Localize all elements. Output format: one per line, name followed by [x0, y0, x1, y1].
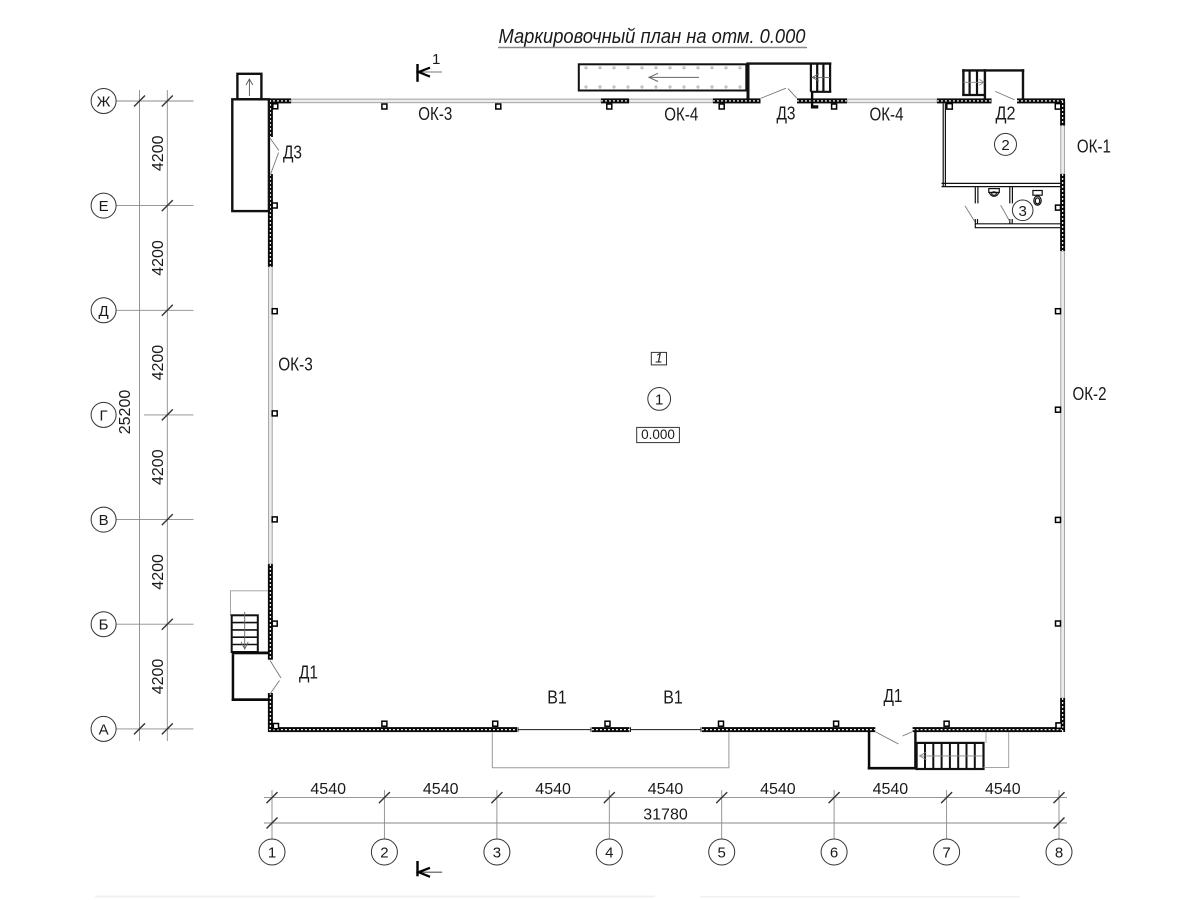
- svg-text:4540: 4540: [310, 781, 346, 798]
- svg-text:Д1: Д1: [299, 662, 318, 683]
- svg-text:4200: 4200: [150, 449, 167, 485]
- svg-text:4540: 4540: [648, 781, 684, 798]
- svg-text:ОК-1: ОК-1: [1077, 135, 1111, 156]
- svg-text:2: 2: [380, 845, 388, 862]
- svg-text:Б: Б: [99, 617, 109, 634]
- svg-text:Е: Е: [99, 198, 109, 215]
- svg-text:ОК-2: ОК-2: [1073, 383, 1107, 404]
- svg-text:В1: В1: [547, 687, 567, 708]
- svg-text:4200: 4200: [150, 345, 167, 381]
- svg-text:Д1: Д1: [884, 685, 903, 706]
- svg-text:В1: В1: [663, 687, 683, 708]
- svg-text:А: А: [99, 721, 109, 738]
- svg-text:4540: 4540: [873, 781, 909, 798]
- svg-text:4200: 4200: [150, 554, 167, 590]
- svg-text:8: 8: [1055, 845, 1063, 862]
- svg-text:4540: 4540: [423, 781, 459, 798]
- svg-text:В: В: [99, 512, 109, 529]
- svg-text:4200: 4200: [150, 240, 167, 276]
- svg-text:6: 6: [830, 845, 838, 862]
- svg-text:4540: 4540: [985, 781, 1021, 798]
- svg-text:1: 1: [268, 845, 276, 862]
- svg-text:31780: 31780: [643, 807, 688, 824]
- svg-text:Д2: Д2: [996, 103, 1016, 124]
- svg-text:ОК-3: ОК-3: [418, 103, 452, 124]
- svg-text:1: 1: [655, 391, 663, 408]
- svg-text:5: 5: [718, 845, 726, 862]
- svg-text:1: 1: [432, 51, 440, 68]
- svg-text:2: 2: [1001, 137, 1009, 154]
- svg-text:7: 7: [942, 845, 950, 862]
- svg-text:Д: Д: [99, 303, 109, 320]
- svg-text:3: 3: [1019, 203, 1027, 220]
- svg-text:4200: 4200: [150, 659, 167, 695]
- svg-text:ОК-3: ОК-3: [278, 354, 313, 375]
- svg-text:4200: 4200: [150, 135, 167, 171]
- svg-text:4: 4: [605, 845, 613, 862]
- svg-text:Ж: Ж: [97, 94, 111, 111]
- svg-text:4540: 4540: [760, 781, 796, 798]
- svg-text:25200: 25200: [117, 390, 134, 435]
- svg-text:3: 3: [493, 845, 501, 862]
- svg-text:Маркировочный план на отм. 0.0: Маркировочный план на отм. 0.000: [499, 25, 807, 48]
- svg-text:Д3: Д3: [777, 103, 796, 124]
- svg-text:0.000: 0.000: [641, 427, 675, 442]
- svg-text:1: 1: [655, 351, 663, 366]
- svg-text:Г: Г: [100, 407, 108, 424]
- svg-text:ОК-4: ОК-4: [664, 103, 698, 124]
- svg-text:4540: 4540: [535, 781, 571, 798]
- svg-text:Д3: Д3: [283, 142, 302, 163]
- svg-text:ОК-4: ОК-4: [870, 103, 904, 124]
